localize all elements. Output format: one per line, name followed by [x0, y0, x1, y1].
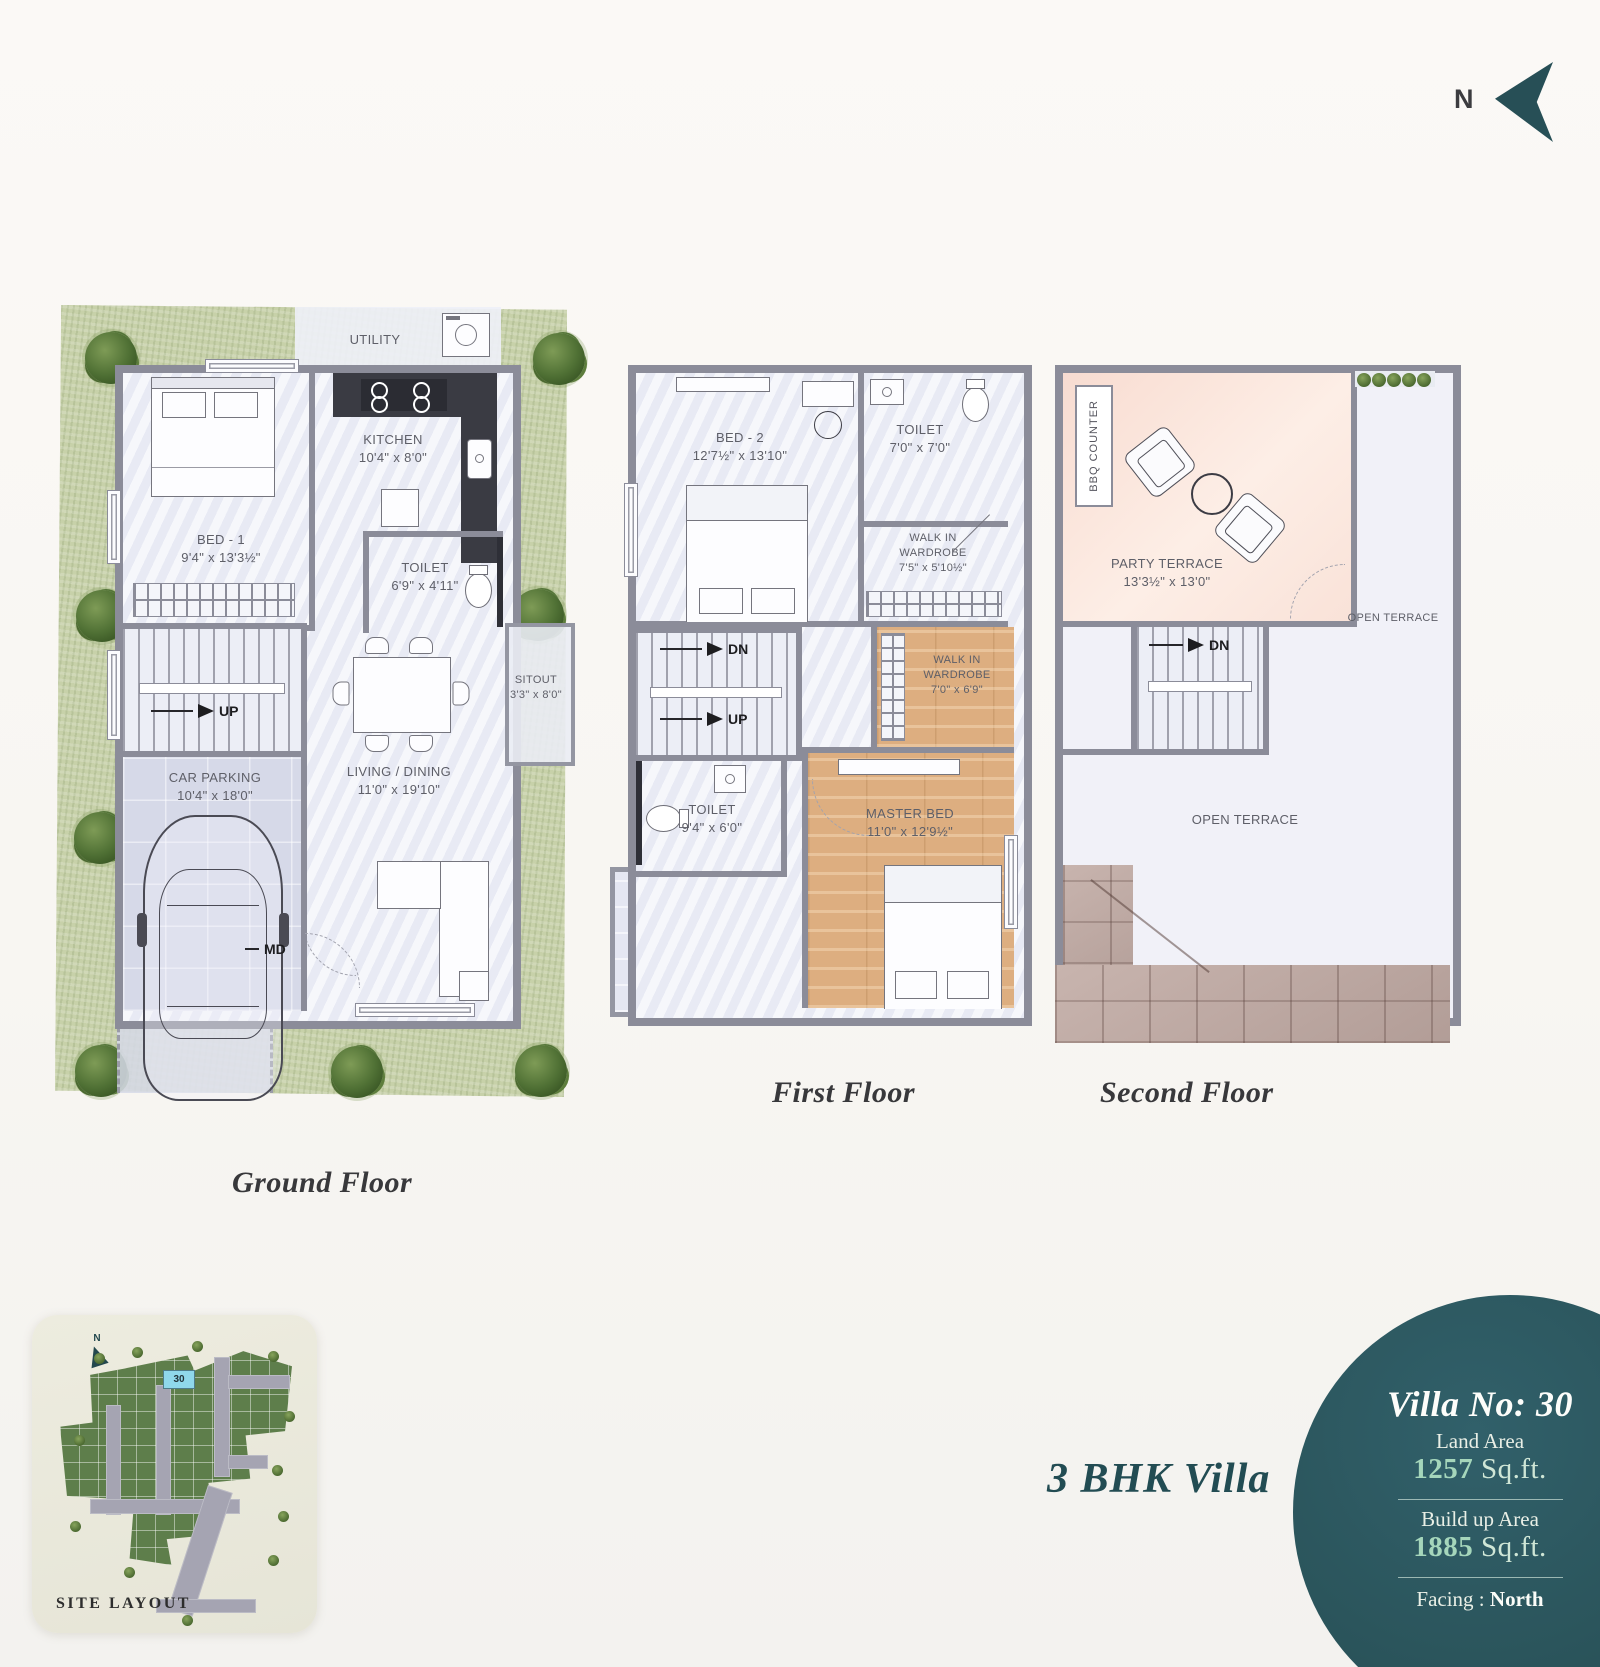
- room-toilet-master: TOILET9'4" x 6'0": [636, 755, 787, 877]
- site-layout-title: SITE LAYOUT: [56, 1595, 191, 1613]
- map-tree-icon: [70, 1521, 81, 1532]
- map-tree-icon: [278, 1511, 289, 1522]
- divider: [1398, 1577, 1563, 1578]
- room-toilet-ground: TOILET6'9" x 4'11": [363, 531, 503, 633]
- first-floor-plan: DECK10'0" x 6'9" BED - 212'7½" x 13'10": [600, 365, 1030, 1015]
- north-label: N: [1454, 84, 1474, 115]
- wall-dark-strip: [497, 537, 503, 627]
- build-area-value: 1885 Sq.ft.: [1293, 1531, 1600, 1564]
- room-sitout: SITOUT3'3" x 8'0": [505, 623, 575, 766]
- round-table-icon: [1191, 473, 1233, 515]
- toilet-first-top-label: TOILET7'0" x 7'0": [890, 421, 951, 456]
- room-bed2: BED - 212'7½" x 13'10": [636, 373, 864, 627]
- party-terrace-label: PARTY TERRACE13'3½" x 13'0": [1111, 555, 1223, 590]
- sink-icon: [870, 379, 904, 405]
- chair-icon: [333, 682, 350, 706]
- terrace-chair-icon: [1122, 424, 1198, 500]
- wall-segment: [1063, 749, 1263, 755]
- room-toilet-first-top: TOILET7'0" x 7'0": [858, 373, 1008, 527]
- site-layout-panel: N 30 SITE LAYOUT: [32, 1315, 317, 1633]
- planter-hedge: [1355, 371, 1435, 387]
- first-floor-building: BED - 212'7½" x 13'10" TOILET7'0" x 7'0": [628, 365, 1032, 1026]
- map-tree-icon: [124, 1567, 135, 1578]
- door-arc: [812, 779, 869, 836]
- window: [107, 490, 121, 564]
- sofa-icon: [377, 861, 441, 909]
- map-tree-icon: [268, 1555, 279, 1566]
- window: [355, 1003, 475, 1017]
- room-wardrobe-master: WALK IN WARDROBE 7'0" x 6'9": [871, 627, 1014, 747]
- brochure-page: N UTILITY: [0, 0, 1600, 1667]
- stair-rail: [139, 683, 285, 694]
- window: [205, 359, 299, 373]
- stove-icon: [361, 379, 447, 411]
- facing-row: Facing : North: [1293, 1587, 1600, 1612]
- site-road: [228, 1375, 290, 1389]
- bed2-label: BED - 212'7½" x 13'10": [693, 429, 788, 464]
- bed-icon: [686, 485, 808, 622]
- ground-floor-building: BED - 19'4" x 13'3½" KITCHEN10'4" x 8'0": [115, 365, 521, 1029]
- sitout-label: SITOUT3'3" x 8'0": [507, 673, 565, 703]
- build-area-label: Build up Area: [1293, 1507, 1600, 1532]
- land-area-label: Land Area: [1293, 1429, 1600, 1454]
- wardrobe-hatch: [866, 591, 1002, 617]
- dn-arrow: DN: [660, 641, 748, 657]
- map-tree-icon: [272, 1465, 283, 1476]
- dresser-icon: [838, 759, 960, 775]
- room-kitchen: KITCHEN10'4" x 8'0": [309, 373, 497, 531]
- door-arc: [1290, 564, 1345, 619]
- room-car-parking: CAR PARKING10'4" x 18'0" MD: [123, 751, 307, 1011]
- stair-rail: [650, 687, 781, 698]
- bed1-label: BED - 19'4" x 13'3½": [181, 531, 260, 566]
- map-tree-icon: [132, 1347, 143, 1358]
- map-tree-icon: [74, 1435, 85, 1446]
- window: [1004, 835, 1018, 929]
- build-area-unit: Sq.ft.: [1481, 1531, 1547, 1563]
- staircase-first: DN UP: [636, 627, 802, 761]
- master-bed-label: MASTER BED11'0" x 12'9½": [866, 805, 954, 840]
- room-bed1: BED - 19'4" x 13'3½": [123, 373, 315, 631]
- dining-table-icon: [353, 657, 451, 733]
- map-tree-icon: [182, 1615, 193, 1626]
- parking-label: CAR PARKING10'4" x 18'0": [169, 769, 261, 804]
- wardrobe-hatch: [881, 633, 905, 741]
- staircase-ground: UP: [123, 623, 307, 757]
- sink-icon: [714, 765, 746, 793]
- toilet-icon: [646, 805, 681, 832]
- facing-label: Facing :: [1416, 1587, 1484, 1611]
- north-arrow-icon: [1495, 62, 1553, 142]
- facing-value: North: [1490, 1587, 1544, 1611]
- side-table-icon: [459, 971, 489, 1001]
- dresser-icon: [676, 377, 770, 392]
- bbq-counter-label: BBQ COUNTER: [1088, 400, 1100, 492]
- chair-icon: [365, 735, 389, 752]
- living-label: LIVING / DINING11'0" x 19'10": [347, 763, 451, 798]
- toilet-master-label: TOILET9'4" x 6'0": [682, 801, 743, 836]
- land-area-unit: Sq.ft.: [1481, 1453, 1547, 1485]
- window: [624, 483, 638, 577]
- site-road: [156, 1385, 171, 1515]
- land-area-value: 1257 Sq.ft.: [1293, 1453, 1600, 1486]
- map-tree-icon: [192, 1341, 203, 1352]
- car-icon: [143, 815, 283, 1101]
- tree-icon: [533, 333, 585, 385]
- land-area-number: 1257: [1413, 1453, 1473, 1485]
- plot-number: 30: [173, 1374, 184, 1385]
- wardrobe-hatch: [133, 583, 295, 617]
- kitchen-label: KITCHEN10'4" x 8'0": [359, 431, 427, 466]
- dn-arrow: DN: [1149, 637, 1229, 653]
- washing-machine-icon: [442, 313, 490, 357]
- map-tree-icon: [284, 1411, 295, 1422]
- room-wardrobe-first: WALK IN WARDROBE 7'5" x 5'10½": [858, 521, 1008, 627]
- up-arrow: UP: [151, 703, 238, 719]
- desk-chair-icon: [814, 411, 842, 439]
- site-north-label: N: [93, 1333, 100, 1344]
- wardrobe-first-label: WALK IN WARDROBE 7'5" x 5'10½": [899, 531, 967, 576]
- chair-icon: [409, 735, 433, 752]
- toilet-icon: [962, 387, 989, 422]
- first-floor-title: First Floor: [772, 1076, 915, 1110]
- open-terrace-right-label: OPEN TERRACE: [1348, 611, 1439, 626]
- divider: [1398, 1499, 1563, 1500]
- bbq-counter: BBQ COUNTER: [1075, 385, 1113, 507]
- second-floor-title: Second Floor: [1100, 1076, 1274, 1110]
- chair-icon: [409, 637, 433, 654]
- staircase-second: DN: [1131, 627, 1269, 755]
- fridge-icon: [381, 489, 419, 527]
- wardrobe-master-label: WALK IN WARDROBE 7'0" x 6'9": [923, 653, 990, 698]
- build-area-number: 1885: [1413, 1531, 1473, 1563]
- utility-label: UTILITY: [350, 331, 401, 349]
- sink-icon: [467, 439, 492, 479]
- room-party-terrace: BBQ COUNTER PARTY TERRACE13'3½" x 13'0": [1063, 373, 1357, 627]
- window: [107, 650, 121, 740]
- ground-floor-plan: UTILITY BED - 19'4" x 13'3½": [55, 305, 567, 1097]
- site-road: [228, 1455, 268, 1469]
- tree-icon: [515, 1045, 567, 1097]
- desk-icon: [802, 381, 854, 407]
- roof-tiles: [1055, 965, 1450, 1043]
- bed-icon: [151, 377, 275, 497]
- map-tree-icon: [268, 1351, 279, 1362]
- toilet-icon: [465, 573, 492, 608]
- toilet-ground-label: TOILET6'9" x 4'11": [391, 559, 458, 594]
- up-arrow: UP: [660, 711, 747, 727]
- villa-info-badge: Villa No: 30 Land Area 1257 Sq.ft. Build…: [1293, 1295, 1600, 1667]
- villa-number: Villa No: 30: [1293, 1383, 1600, 1425]
- second-floor-plan: BBQ COUNTER PARTY TERRACE13'3½" x 13'0" …: [1055, 365, 1450, 1065]
- bed-icon: [884, 865, 1002, 1009]
- wall-dark-strip: [636, 761, 642, 865]
- map-tree-icon: [94, 1353, 105, 1364]
- tree-icon: [331, 1046, 383, 1098]
- room-master-bed: MASTER BED11'0" x 12'9½": [802, 747, 1014, 1008]
- highlighted-plot-30: 30: [163, 1370, 195, 1389]
- md-label: MD: [245, 941, 286, 957]
- ground-floor-title: Ground Floor: [232, 1166, 412, 1200]
- stair-rail: [1148, 681, 1251, 692]
- open-terrace-main-label: OPEN TERRACE: [1192, 811, 1299, 829]
- chair-icon: [365, 637, 389, 654]
- villa-type-caption: 3 BHK Villa: [1047, 1455, 1270, 1503]
- chair-icon: [453, 682, 470, 706]
